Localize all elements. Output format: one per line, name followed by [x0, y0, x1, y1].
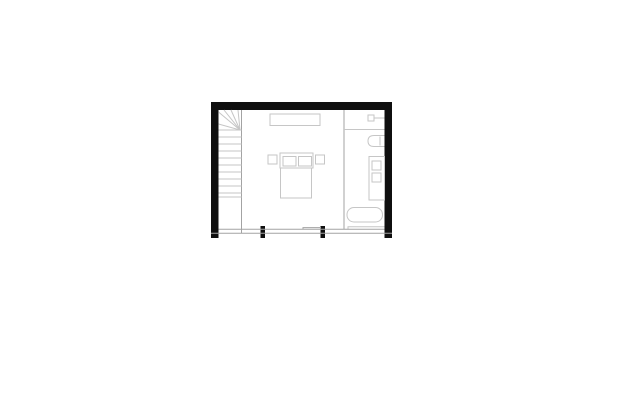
vanity-cabinet [369, 157, 385, 201]
wardrobe [270, 114, 320, 126]
vanity-basin-1 [372, 161, 381, 170]
window-mullion-right [321, 226, 326, 238]
floor-plan-drawing [0, 0, 618, 412]
right-wall [385, 102, 393, 238]
nightstand-right [316, 155, 325, 164]
floor-plan-page [0, 0, 618, 412]
bed [281, 168, 312, 198]
window-mullion-left [261, 226, 266, 238]
left-wall [211, 102, 219, 238]
shower-valve [368, 115, 374, 121]
pillow-left [283, 157, 296, 167]
bathtub [347, 208, 383, 223]
vanity-basin-2 [372, 173, 381, 182]
toilet [368, 136, 385, 147]
top-wall [211, 102, 392, 110]
pillow-right [299, 157, 312, 167]
nightstand-left [268, 155, 277, 164]
